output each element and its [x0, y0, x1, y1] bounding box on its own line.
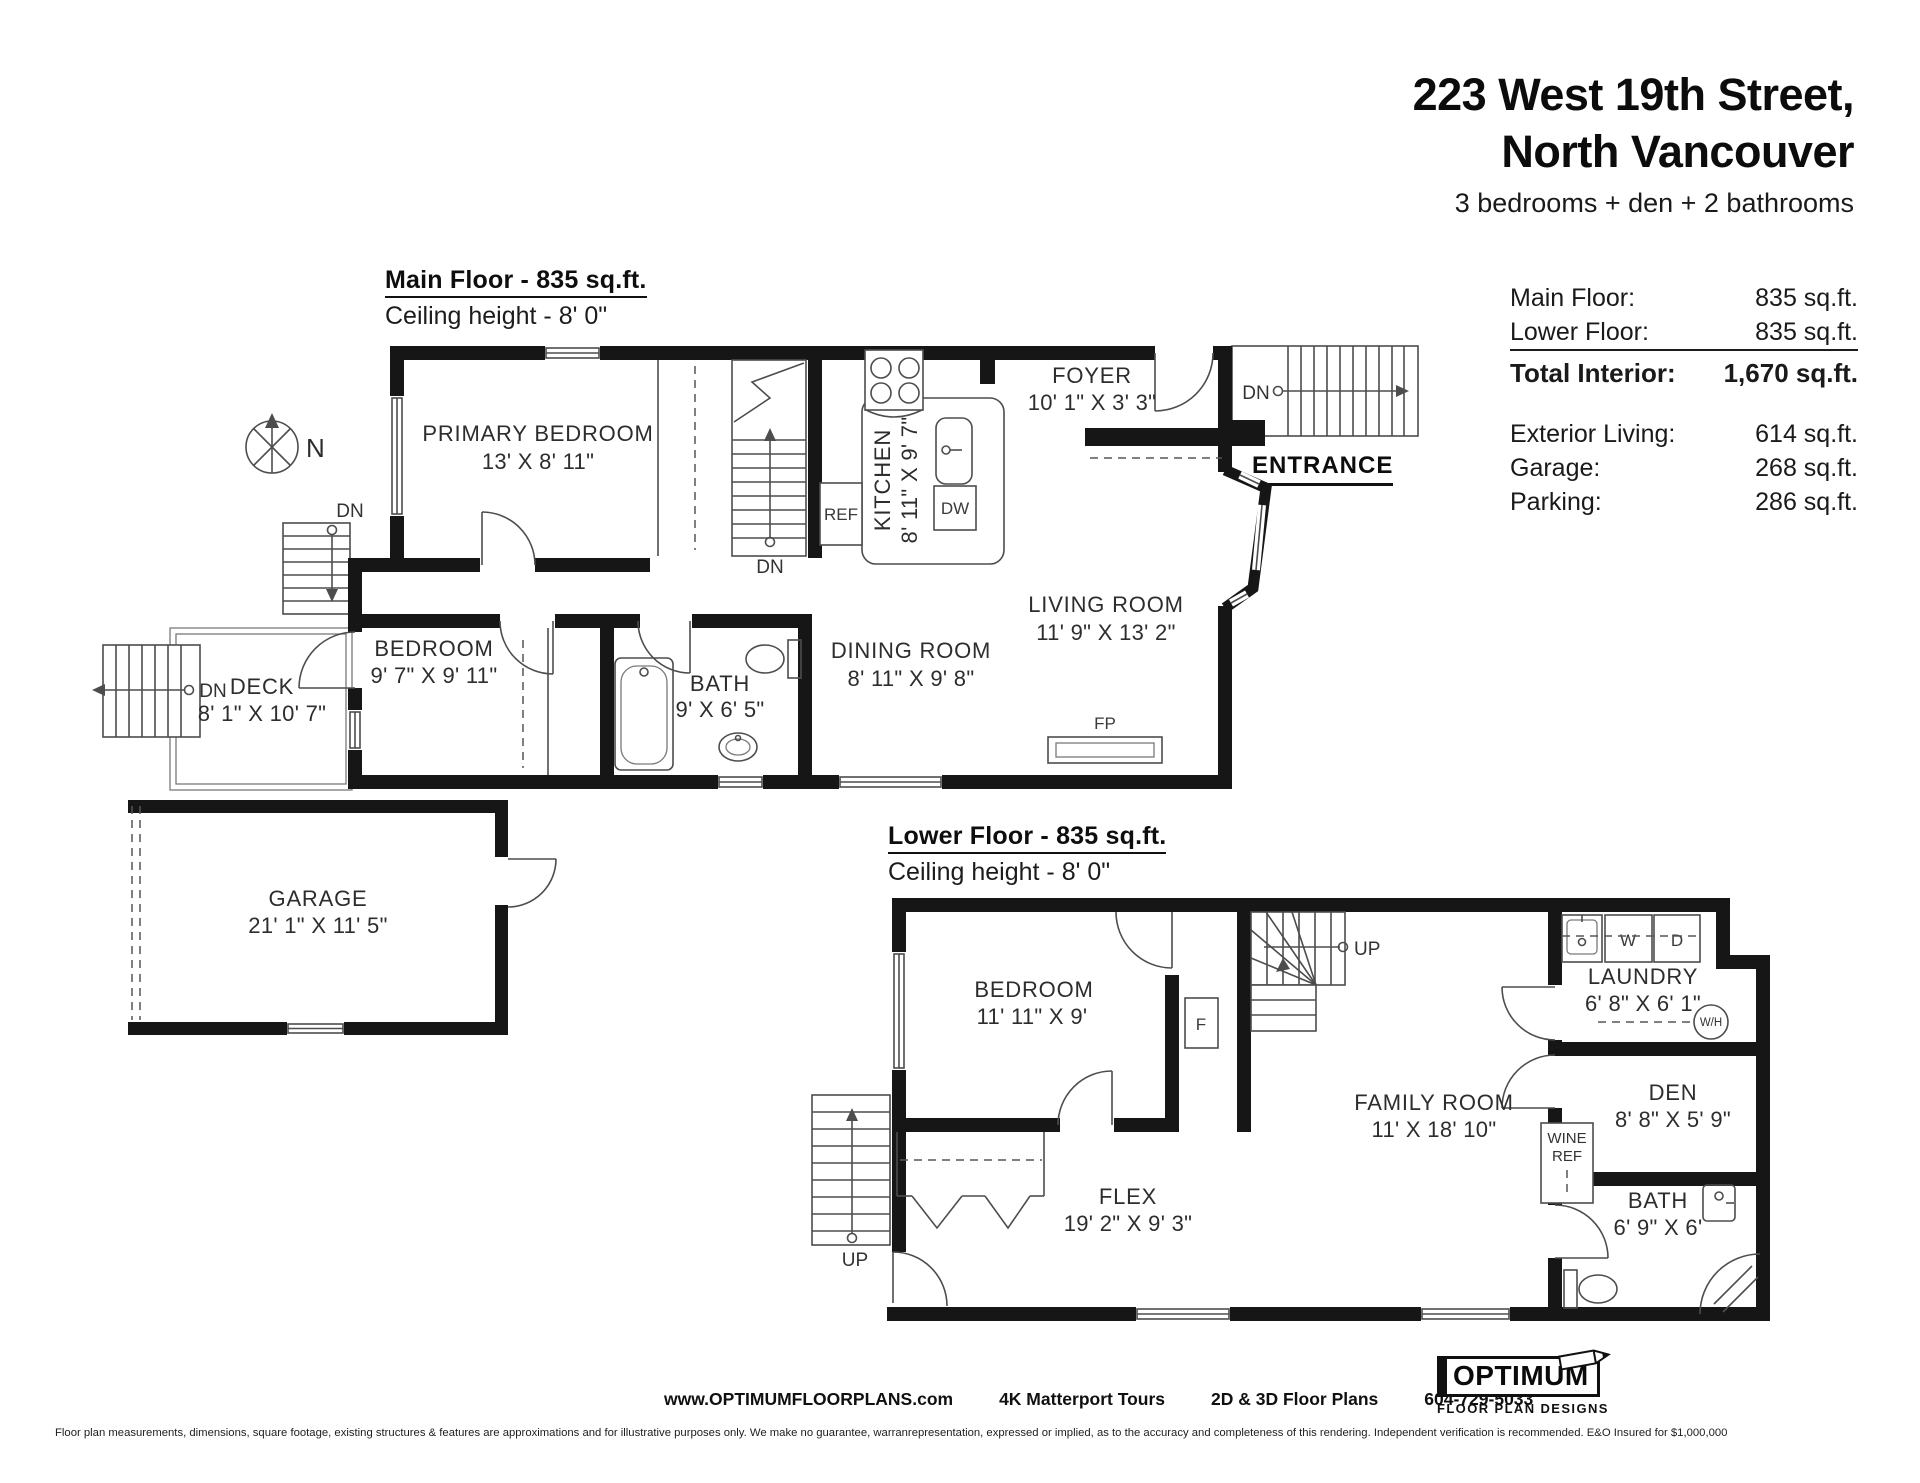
optimum-logo: OPTIMUM FLOOR PLAN DESIGNS [1437, 1356, 1609, 1416]
room-dims-bath: 9' X 6' 5" [676, 697, 765, 722]
interior-up-label: UP [1354, 939, 1380, 960]
logo-subtitle: FLOOR PLAN DESIGNS [1437, 1401, 1609, 1416]
room-label-garage: GARAGE [269, 886, 368, 911]
stats-value: 286 sq.ft. [1755, 488, 1858, 517]
bath-sink-icon [719, 733, 757, 761]
entry-dn-label: DN [1242, 383, 1269, 404]
stats-row-lower-floor: Lower Floor: 835 sq.ft. [1510, 315, 1858, 351]
wine-ref-label-2: REF [1552, 1148, 1582, 1165]
furnace-icon: F [1185, 998, 1218, 1048]
room-label-laundry: LAUNDRY [1588, 964, 1698, 989]
garage-side-door [508, 859, 556, 907]
flex-closets [897, 1132, 1044, 1228]
floor-plan-page: 223 West 19th Street, North Vancouver 3 … [0, 0, 1920, 1483]
stats-value: 614 sq.ft. [1755, 420, 1858, 449]
garage-labels: GARAGE 21' 1" X 11' 5" [248, 886, 387, 938]
room-dims-den: 8' 8" X 5' 9" [1615, 1107, 1731, 1132]
listing-subtitle: 3 bedrooms + den + 2 bathrooms [1413, 188, 1854, 219]
room-dims-foyer: 10' 1" X 3' 3" [1028, 390, 1157, 415]
dryer-icon: D [1654, 915, 1700, 962]
stats-row-total-interior: Total Interior: 1,670 sq.ft. [1510, 351, 1858, 391]
toilet-icon [746, 640, 801, 678]
room-label-living-room: LIVING ROOM [1028, 592, 1184, 617]
dishwasher-icon: DW [934, 486, 976, 530]
lower-bath-sink-icon [1703, 1185, 1735, 1221]
compass-icon: N [246, 413, 325, 473]
deck-dn-label: DN [199, 681, 226, 702]
lower-exterior-stairs: UP [812, 1095, 890, 1271]
fp-label: FP [1094, 714, 1116, 733]
bay-window [1225, 470, 1266, 608]
lower-floor-room-labels: BEDROOM 11' 11" X 9' FAMILY ROOM 11' X 1… [974, 964, 1731, 1240]
room-dims-dining-room: 8' 11" X 9' 8" [848, 666, 975, 691]
landing-dn-label: DN [336, 501, 363, 522]
room-label-den: DEN [1649, 1080, 1698, 1105]
room-label-flex: FLEX [1099, 1184, 1157, 1209]
main-floor-heading: Main Floor - 835 sq.ft. Ceiling height -… [385, 266, 647, 331]
stats-label: Lower Floor: [1510, 318, 1649, 347]
room-label-lower-bedroom: BEDROOM [974, 977, 1093, 1002]
room-label-primary-bedroom: PRIMARY BEDROOM [422, 421, 653, 446]
room-label-kitchen: KITCHEN [870, 429, 895, 531]
room-label-dining-room: DINING ROOM [831, 638, 991, 663]
interior-stairs-lower: UP [1251, 912, 1380, 1031]
wine-ref-label-1: WINE [1547, 1130, 1586, 1147]
room-dims-lower-bedroom: 11' 11" X 9' [977, 1004, 1088, 1029]
room-dims-family-room: 11' X 18' 10" [1372, 1117, 1497, 1142]
kitchen-sink-icon [936, 418, 972, 484]
fridge-icon: REF [820, 483, 862, 545]
stats-row-garage: Garage: 268 sq.ft. [1510, 451, 1858, 485]
room-dims-lower-bath: 6' 9" X 6' [1614, 1215, 1703, 1240]
footer-service-2: 2D & 3D Floor Plans [1211, 1389, 1378, 1410]
laundry-sink-icon [1562, 915, 1602, 962]
footer-service-1: 4K Matterport Tours [999, 1389, 1165, 1410]
room-dims-kitchen: 8' 11" X 9' 7" [897, 417, 922, 544]
stats-value: 835 sq.ft. [1755, 284, 1858, 313]
interior-dn-label: DN [756, 557, 783, 578]
room-label-bath: BATH [690, 671, 750, 696]
logo-box: OPTIMUM [1437, 1356, 1600, 1397]
room-label-bedroom: BEDROOM [374, 636, 493, 661]
address-line-1: 223 West 19th Street, [1413, 66, 1854, 123]
lower-floor-heading: Lower Floor - 835 sq.ft. Ceiling height … [888, 822, 1166, 887]
furnace-label: F [1196, 1015, 1206, 1034]
stats-row-exterior-living: Exterior Living: 614 sq.ft. [1510, 417, 1858, 451]
compass-n-label: N [306, 433, 325, 463]
stats-label: Exterior Living: [1510, 420, 1675, 449]
room-dims-bedroom: 9' 7" X 9' 11" [371, 663, 498, 688]
main-floor-title: Main Floor - 835 sq.ft. [385, 266, 647, 298]
stats-label: Garage: [1510, 454, 1600, 483]
stats-value: 1,670 sq.ft. [1724, 358, 1858, 389]
room-dims-garage: 21' 1" X 11' 5" [248, 913, 387, 938]
room-dims-deck: 8' 1" X 10' 7" [198, 701, 327, 726]
garage-door-dashed [132, 806, 140, 1020]
garage-plan: GARAGE 21' 1" X 11' 5" [100, 780, 580, 1050]
footer-services: www.OPTIMUMFLOORPLANS.com 4K Matterport … [664, 1389, 1533, 1410]
water-heater-label: W/H [1700, 1017, 1722, 1029]
room-dims-laundry: 6' 8" X 6' 1" [1585, 991, 1701, 1016]
stats-label: Total Interior: [1510, 358, 1676, 389]
main-floor-ceiling: Ceiling height - 8' 0" [385, 302, 647, 331]
address-line-2: North Vancouver [1413, 123, 1854, 180]
bathtub-icon [615, 658, 673, 770]
dryer-label: D [1671, 931, 1683, 950]
wine-fridge-icon: WINE REF [1541, 1123, 1593, 1203]
corner-shower-icon [1700, 1254, 1760, 1314]
lower-floor-title: Lower Floor - 835 sq.ft. [888, 822, 1166, 854]
main-floor-plan: DN DN DN [80, 330, 1440, 800]
stats-label: Main Floor: [1510, 284, 1635, 313]
room-dims-living-room: 11' 9" X 13' 2" [1036, 620, 1175, 645]
lower-floor-plan: UP [780, 880, 1800, 1340]
room-label-deck: DECK [230, 674, 294, 699]
garage-window [287, 1022, 344, 1035]
dw-label: DW [941, 499, 969, 518]
room-label-family-room: FAMILY ROOM [1354, 1090, 1514, 1115]
footer-website: www.OPTIMUMFLOORPLANS.com [664, 1389, 953, 1410]
stats-label: Parking: [1510, 488, 1602, 517]
header: 223 West 19th Street, North Vancouver 3 … [1413, 66, 1854, 219]
room-dims-flex: 19' 2" X 9' 3" [1064, 1211, 1193, 1236]
stats-value: 835 sq.ft. [1755, 318, 1858, 347]
stats-value: 268 sq.ft. [1755, 454, 1858, 483]
disclaimer-text: Floor plan measurements, dimensions, squ… [55, 1427, 1727, 1439]
exterior-up-label: UP [842, 1250, 868, 1271]
washer-label: W [1620, 931, 1636, 950]
washer-icon: W [1605, 915, 1652, 962]
stats-row-main-floor: Main Floor: 835 sq.ft. [1510, 281, 1858, 315]
room-dims-primary-bedroom: 13' X 8' 11" [482, 449, 594, 474]
lower-toilet-icon [1564, 1270, 1617, 1308]
interior-stairs-main: DN [732, 360, 806, 578]
stats-row-parking: Parking: 286 sq.ft. [1510, 485, 1858, 519]
fireplace-icon: FP [1048, 714, 1162, 763]
stove-icon [865, 350, 923, 417]
area-summary: Main Floor: 835 sq.ft. Lower Floor: 835 … [1510, 281, 1858, 519]
room-label-foyer: FOYER [1052, 363, 1132, 388]
room-label-lower-bath: BATH [1628, 1188, 1688, 1213]
ref-label: REF [824, 505, 858, 524]
